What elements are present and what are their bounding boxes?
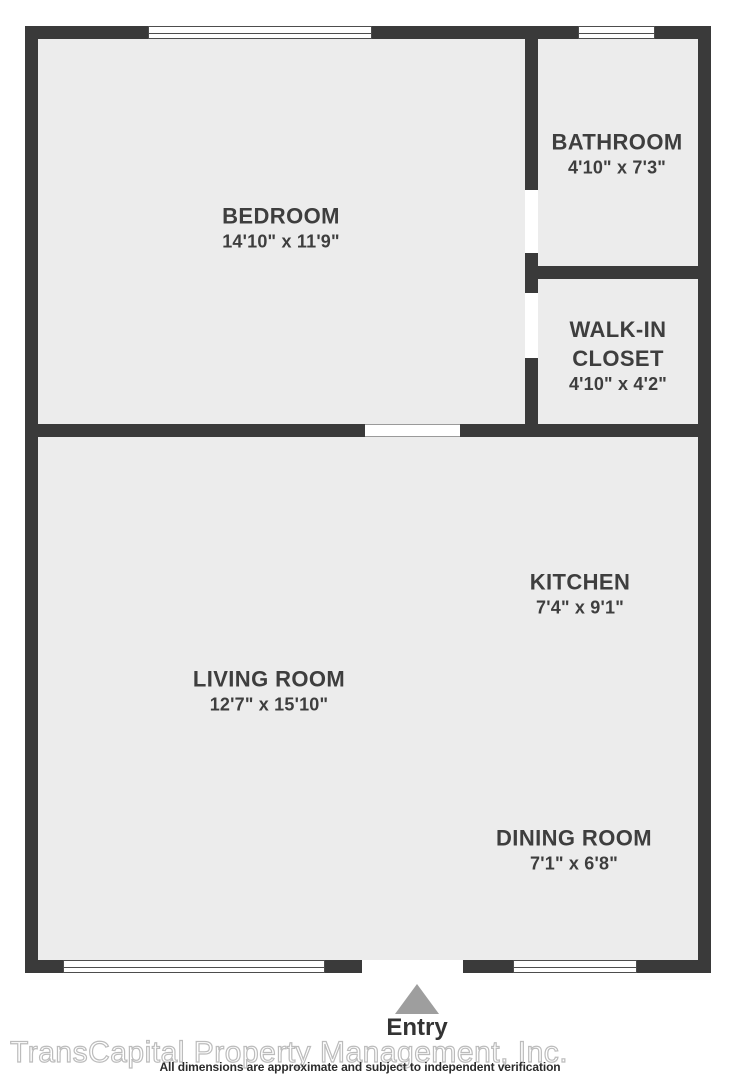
bedroom-door-opening	[365, 424, 460, 437]
bedroom-label: BEDROOM 14'10" x 11'9"	[222, 202, 340, 255]
wall-right	[698, 26, 711, 973]
bathroom-name: BATHROOM	[551, 128, 682, 157]
dining-room-name: DINING ROOM	[496, 824, 652, 853]
wall-left	[25, 26, 38, 973]
kitchen-dims: 7'4" x 9'1"	[530, 597, 631, 621]
entry-arrow-icon	[395, 984, 439, 1014]
bedroom-name: BEDROOM	[222, 202, 340, 231]
walk-in-closet-dims: 4'10" x 4'2"	[543, 373, 693, 397]
dining-room-dims: 7'1" x 6'8"	[496, 853, 652, 877]
floor-plan: BEDROOM 14'10" x 11'9" BATHROOM 4'10" x …	[0, 0, 735, 1080]
bathroom-label: BATHROOM 4'10" x 7'3"	[551, 128, 682, 181]
living-room-name: LIVING ROOM	[193, 665, 345, 694]
dining-room-label: DINING ROOM 7'1" x 6'8"	[496, 824, 652, 877]
living-room-window	[63, 960, 325, 973]
walk-in-closet-name: WALK-IN CLOSET	[543, 315, 693, 373]
bathroom-dims: 4'10" x 7'3"	[551, 157, 682, 181]
living-room-label: LIVING ROOM 12'7" x 15'10"	[193, 665, 345, 718]
walk-in-closet-label: WALK-IN CLOSET 4'10" x 4'2"	[543, 315, 693, 397]
bathroom-window	[578, 26, 655, 39]
entry-door-opening	[362, 960, 463, 973]
closet-door-opening	[525, 293, 538, 358]
bedroom-window	[148, 26, 372, 39]
kitchen-label: KITCHEN 7'4" x 9'1"	[530, 568, 631, 621]
bathroom-door-opening	[525, 190, 538, 253]
dimensions-disclaimer: All dimensions are approximate and subje…	[159, 1060, 560, 1074]
living-room-dims: 12'7" x 15'10"	[193, 694, 345, 718]
wall-bathroom-closet-divider	[525, 266, 711, 279]
dining-room-window	[513, 960, 637, 973]
kitchen-name: KITCHEN	[530, 568, 631, 597]
bedroom-dims: 14'10" x 11'9"	[222, 231, 340, 255]
